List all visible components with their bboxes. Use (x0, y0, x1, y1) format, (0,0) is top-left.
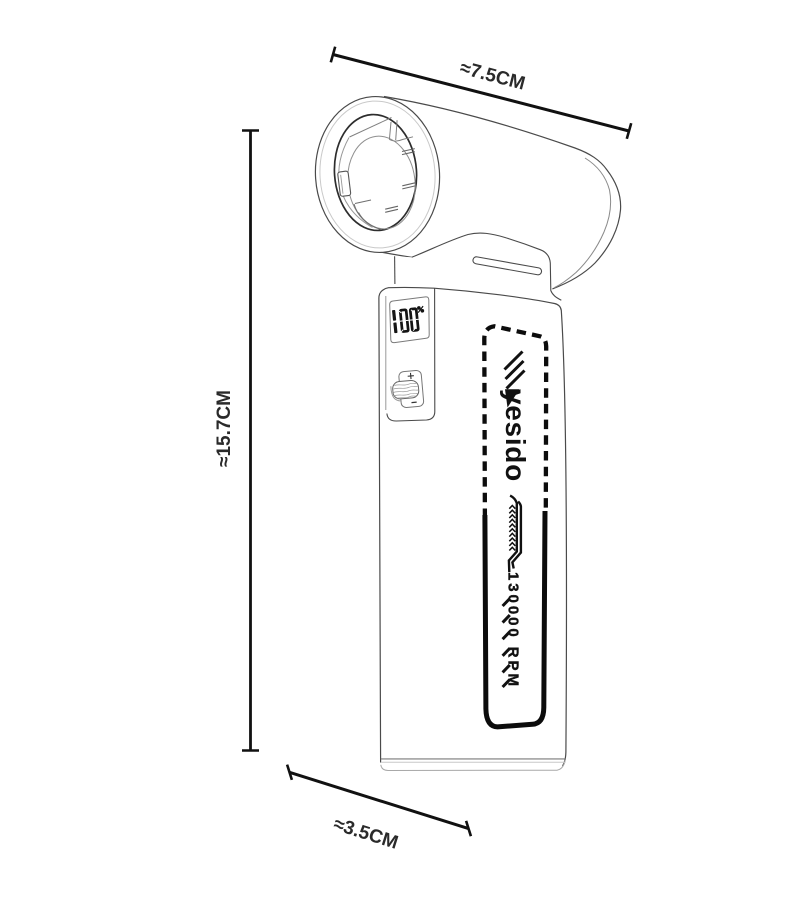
svg-text:yesido: yesido (500, 389, 531, 482)
svg-text:≈15.7CM: ≈15.7CM (214, 390, 235, 467)
